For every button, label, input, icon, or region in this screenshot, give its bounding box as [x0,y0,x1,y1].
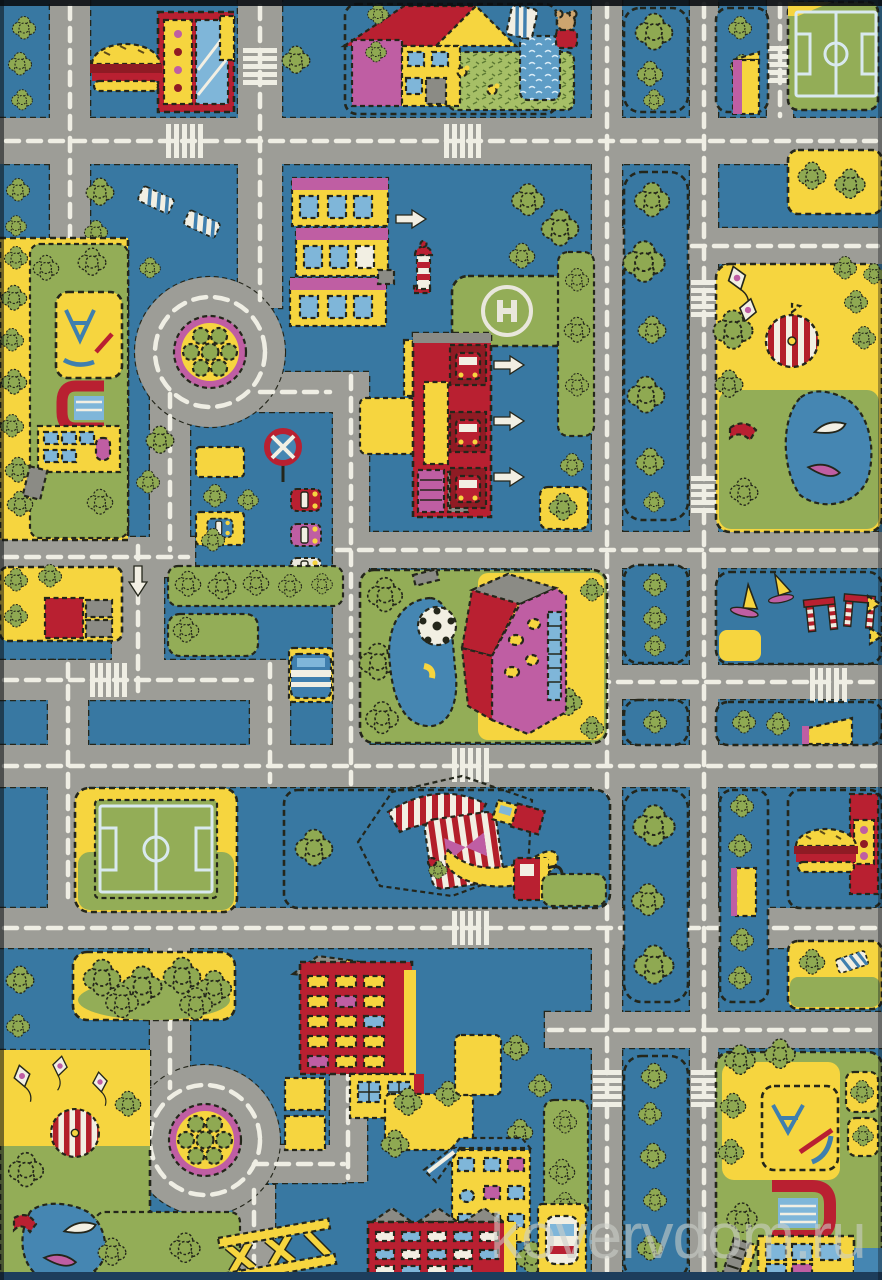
burger-kiosk-right [788,790,882,908]
picnic-table [506,5,538,40]
mini-park-right [788,941,882,1009]
fire-truck-bay [450,412,486,452]
watermark: kovervdom.ru [490,1204,866,1268]
soccer-field-top [788,2,878,110]
soccer-ball [418,607,456,645]
lean-to-shed [731,868,756,916]
soccer-field-bottom [75,788,237,912]
shops-row [290,178,394,326]
fire-truck-bay [450,468,486,508]
fire-truck-bay [450,345,486,385]
sports-club [360,569,607,743]
bus-stop [289,648,333,702]
circus-tent [284,776,610,908]
play-rug-photo: kovervdom.ru [0,0,882,1280]
kiosk-small [733,52,759,114]
rug-illustration [0,0,882,1280]
windsurf-lot [716,572,882,664]
roundabout-top [135,277,285,427]
yard-with-containers [0,565,122,642]
roundabout-bottom [130,1065,280,1215]
